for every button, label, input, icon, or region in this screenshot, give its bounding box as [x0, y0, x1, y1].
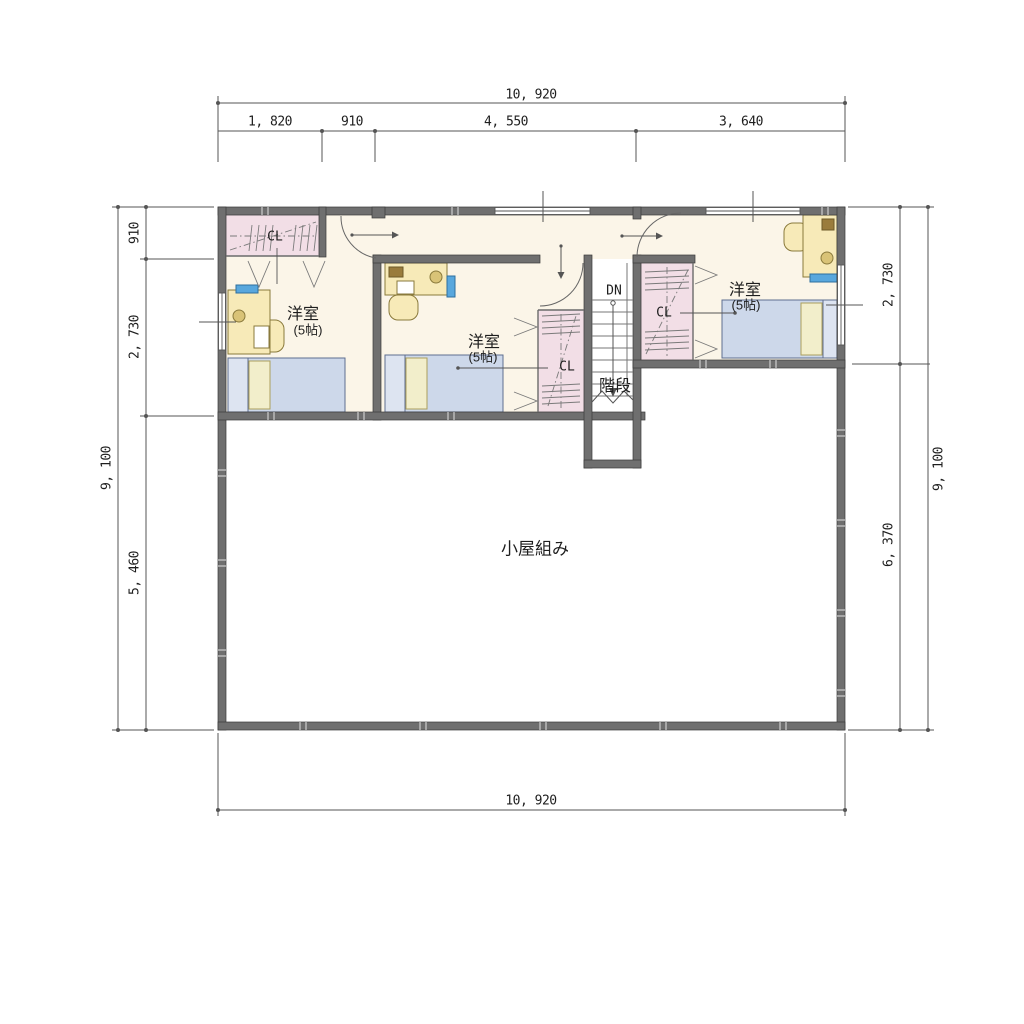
- chair: [389, 295, 418, 320]
- wall-stair-left: [584, 255, 592, 468]
- closet3-label: CL: [656, 306, 672, 321]
- wall-room3-bottom: [633, 360, 845, 368]
- stairs-direction-label: DN: [606, 284, 622, 299]
- wall-room2-top: [373, 255, 540, 263]
- dim-top-seg-1: 910: [341, 115, 363, 130]
- dim-left-seg-1: 2, 730: [128, 315, 143, 359]
- dim-right-total: 9, 100: [932, 447, 947, 491]
- wall-outer-left: [218, 207, 226, 730]
- room3-size: (5帖): [732, 295, 761, 314]
- wall-closet1-right: [319, 207, 326, 257]
- dim-left-total: 9, 100: [100, 446, 115, 490]
- dim-right-seg-0: 2, 730: [882, 263, 897, 307]
- dim-top-total: 10, 920: [505, 88, 556, 103]
- dim-right-seg-1: 6, 370: [882, 523, 897, 567]
- pillow: [249, 361, 270, 409]
- room2-size: (5帖): [469, 347, 498, 366]
- attic-area: [226, 420, 837, 722]
- stair-arrow-origin: [611, 301, 615, 305]
- dim-top-seg-3: 3, 640: [719, 115, 763, 130]
- floor-plan: 10, 920 1, 820 910 4, 550 3, 640 10, 920…: [0, 0, 1024, 1024]
- dim-bottom-total: 10, 920: [505, 794, 556, 809]
- laptop: [236, 285, 258, 293]
- pillow: [406, 358, 427, 409]
- wall-closet3-top: [633, 255, 695, 263]
- dim-top-seg-2: 4, 550: [484, 115, 528, 130]
- laptop: [810, 274, 837, 282]
- attic-area-right: [641, 368, 837, 420]
- room1-size: (5帖): [294, 320, 323, 339]
- dim-left-seg-0: 910: [128, 222, 143, 244]
- bed-room1: [228, 358, 345, 412]
- closet2-label: CL: [559, 360, 575, 375]
- attic-label: 小屋組み: [501, 535, 569, 560]
- wall-outer-bottom: [218, 722, 845, 730]
- wall-rooms-bottom: [218, 412, 645, 420]
- wall-stair-bottom: [584, 460, 641, 468]
- floor-plan-drawing: [0, 0, 1024, 1024]
- laptop: [447, 276, 455, 297]
- closet1-label: CL: [267, 230, 283, 245]
- wall-stub-bay: [372, 207, 385, 218]
- pillow: [801, 303, 822, 355]
- dim-top-seg-0: 1, 820: [248, 115, 292, 130]
- dim-left-seg-2: 5, 460: [128, 551, 143, 595]
- wall-stub-room3: [633, 207, 641, 219]
- stairs-label: 階段: [599, 372, 631, 396]
- wall-room1-room2: [373, 255, 381, 420]
